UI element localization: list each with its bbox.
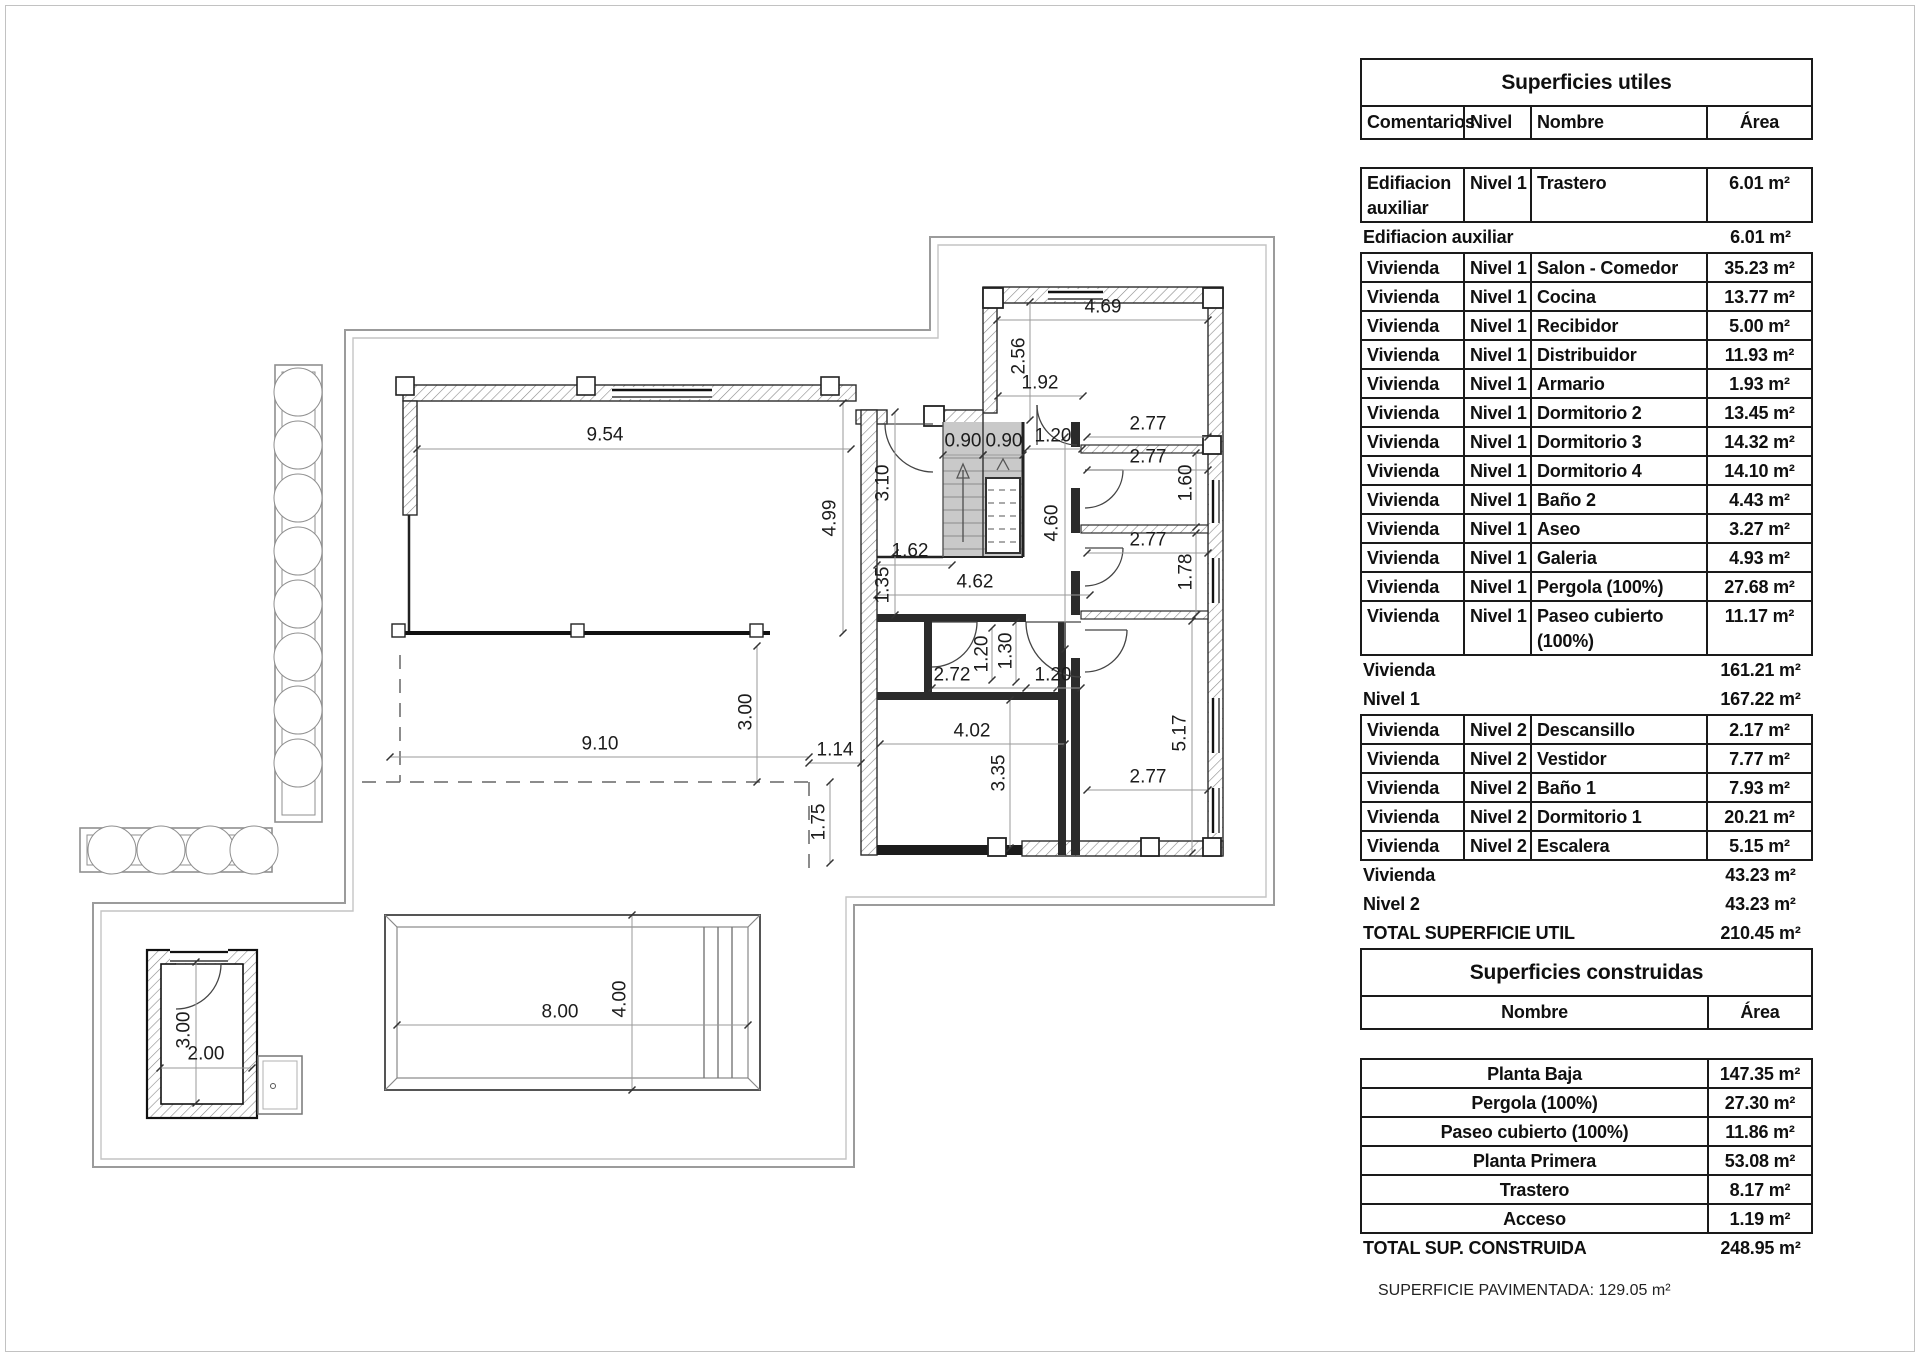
table-cell: Trastero: [1362, 1176, 1707, 1203]
table-row: Pergola (100%)27.30 m²: [1362, 1087, 1811, 1116]
table-row: ViviendaNivel 2Baño 17.93 m²: [1362, 772, 1811, 801]
table-cell: Edifiacion auxiliar: [1362, 169, 1463, 221]
table-cell: Nivel 2: [1463, 745, 1530, 772]
dimension-label: 5.17: [1171, 715, 1190, 752]
table-row: ViviendaNivel 1Recibidor5.00 m²: [1362, 310, 1811, 339]
dimension-label: 2.00: [188, 1045, 225, 1064]
table-row: Planta Primera53.08 m²: [1362, 1145, 1811, 1174]
table-cell: 1.93 m²: [1706, 370, 1811, 397]
table-cell: Vestidor: [1530, 745, 1706, 772]
table-cell: Nivel 1: [1463, 515, 1530, 542]
dimension-label: 1.35: [874, 567, 893, 604]
dimension-label: 1.20: [973, 636, 992, 673]
table-cell: 11.86 m²: [1707, 1118, 1811, 1145]
table-cell: 14.10 m²: [1706, 457, 1811, 484]
dimension-label: 1.20: [1035, 666, 1072, 685]
table-cell: Galeria: [1530, 544, 1706, 571]
dimension-label: 1.62: [892, 542, 929, 561]
table-cell: 6.01 m²: [1706, 169, 1811, 221]
subtotal-value: 210.45 m²: [1708, 919, 1813, 948]
table-cell: Vivienda: [1362, 283, 1463, 310]
table-cell: 5.15 m²: [1706, 832, 1811, 859]
table-cell: Vivienda: [1362, 716, 1463, 743]
table-cell: 4.93 m²: [1706, 544, 1811, 571]
table-cell: Nivel 1: [1463, 399, 1530, 426]
dimension-label: 2.56: [1010, 338, 1029, 375]
table-cell: Escalera: [1530, 832, 1706, 859]
table-cell: Nivel 1: [1463, 573, 1530, 600]
table-cell: Trastero: [1530, 169, 1706, 221]
dimension-label: 4.62: [957, 573, 994, 592]
dimension-label: 4.99: [821, 500, 840, 537]
dimension-label: 2.72: [934, 666, 971, 685]
storage-building: [147, 948, 257, 1118]
table-cell: Dormitorio 4: [1530, 457, 1706, 484]
table-cell: Vivienda: [1362, 602, 1463, 654]
table-cell: Vivienda: [1362, 803, 1463, 830]
table-row: ViviendaNivel 1Salon - Comedor35.23 m²: [1362, 254, 1811, 281]
table-cell: Dormitorio 3: [1530, 428, 1706, 455]
table-cell: 4.43 m²: [1706, 486, 1811, 513]
table-cell: Paseo cubierto (100%): [1530, 602, 1706, 654]
column-header: Nombre: [1362, 997, 1707, 1028]
table-cell: Vivienda: [1362, 774, 1463, 801]
table-cell: Baño 2: [1530, 486, 1706, 513]
table-cell: Nivel 2: [1463, 716, 1530, 743]
column-header: Comentarios: [1362, 107, 1463, 138]
table-cell: 5.00 m²: [1706, 312, 1811, 339]
table-row: ViviendaNivel 1Baño 24.43 m²: [1362, 484, 1811, 513]
table-cell: Baño 1: [1530, 774, 1706, 801]
subtotal-row: Nivel 1167.22 m²: [1360, 685, 1813, 714]
dimension-label: 1.92: [1022, 374, 1059, 393]
table-cell: Nivel 1: [1463, 602, 1530, 654]
subtotal-value: 43.23 m²: [1708, 861, 1813, 890]
access-pad: [258, 1056, 302, 1114]
table-row: ViviendaNivel 1Dormitorio 314.32 m²: [1362, 426, 1811, 455]
paved-surface-note: SUPERFICIE PAVIMENTADA: 129.05 m²: [1378, 1282, 1671, 1300]
table-cell: 53.08 m²: [1707, 1147, 1811, 1174]
subtotal-value: 161.21 m²: [1708, 656, 1813, 685]
table-row: ViviendaNivel 1Aseo3.27 m²: [1362, 513, 1811, 542]
table-cell: 13.45 m²: [1706, 399, 1811, 426]
table-cell: Armario: [1530, 370, 1706, 397]
tree-planter-vertical: [274, 365, 322, 822]
table-row: ViviendaNivel 1Armario1.93 m²: [1362, 368, 1811, 397]
subtotal-row: Vivienda43.23 m²: [1360, 861, 1813, 890]
table-header-row: NombreÁrea: [1362, 997, 1811, 1028]
dimension-label: 0.90: [986, 432, 1023, 451]
table-row: ViviendaNivel 1Dormitorio 414.10 m²: [1362, 455, 1811, 484]
table-title: Superficies construidas: [1362, 950, 1811, 997]
table-cell: 2.17 m²: [1706, 716, 1811, 743]
dimension-label: 1.75: [810, 804, 829, 841]
dimension-label: 1.60: [1177, 465, 1196, 502]
table-cell: Nivel 1: [1463, 370, 1530, 397]
table-cell: 35.23 m²: [1706, 254, 1811, 281]
column-header: Área: [1707, 997, 1811, 1028]
dimension-label: 9.54: [587, 426, 624, 445]
table-cell: Vivienda: [1362, 486, 1463, 513]
tree-planter-horizontal: [80, 826, 278, 874]
subtotal-row: TOTAL SUPERFICIE UTIL210.45 m²: [1360, 919, 1813, 948]
table-title: Superficies utiles: [1362, 60, 1811, 107]
dimension-label: 8.00: [542, 1003, 579, 1022]
table-cell: 20.21 m²: [1706, 803, 1811, 830]
dimension-label: 2.77: [1130, 448, 1167, 467]
pergola: [392, 377, 856, 637]
table-cell: Vivienda: [1362, 399, 1463, 426]
table-cell: Salon - Comedor: [1530, 254, 1706, 281]
dimension-label: 1.30: [997, 633, 1016, 670]
dimension-label: 2.77: [1130, 768, 1167, 787]
table-cell: 11.93 m²: [1706, 341, 1811, 368]
table-row: ViviendaNivel 1Distribuidor11.93 m²: [1362, 339, 1811, 368]
table-row: ViviendaNivel 2Vestidor7.77 m²: [1362, 743, 1811, 772]
dimension-label: 1.20: [1035, 427, 1072, 446]
table-row: ViviendaNivel 2Dormitorio 120.21 m²: [1362, 801, 1811, 830]
subtotal-row: Edifiacion auxiliar6.01 m²: [1360, 223, 1813, 252]
table-cell: Acceso: [1362, 1205, 1707, 1232]
surfaces-construidas-table: Superficies construidas NombreÁrea Plant…: [1360, 948, 1813, 1263]
subtotal-label: Vivienda: [1360, 660, 1435, 680]
table-row: Edifiacion auxiliarNivel 1Trastero6.01 m…: [1362, 169, 1811, 221]
table-cell: Planta Baja: [1362, 1060, 1707, 1087]
table-row: ViviendaNivel 2Escalera5.15 m²: [1362, 830, 1811, 859]
dimension-label: 1.78: [1177, 554, 1196, 591]
table-cell: Vivienda: [1362, 312, 1463, 339]
subtotal-label: Vivienda: [1360, 865, 1435, 885]
table-cell: Nivel 1: [1463, 169, 1530, 221]
dimension-label: 4.02: [954, 722, 991, 741]
dimension-label: 9.10: [582, 735, 619, 754]
column-header: Área: [1706, 107, 1811, 138]
table-cell: Descansillo: [1530, 716, 1706, 743]
table-cell: Vivienda: [1362, 341, 1463, 368]
table-cell: 7.77 m²: [1706, 745, 1811, 772]
table-cell: Nivel 1: [1463, 486, 1530, 513]
table-header-row: ComentariosNivelNombreÁrea: [1362, 107, 1811, 138]
column-header: Nivel: [1463, 107, 1530, 138]
table-cell: Vivienda: [1362, 254, 1463, 281]
table-row: Paseo cubierto (100%)11.86 m²: [1362, 1116, 1811, 1145]
subtotal-label: Nivel 2: [1360, 894, 1420, 914]
setting-out-lines: [362, 655, 809, 868]
table-cell: Vivienda: [1362, 428, 1463, 455]
table-cell: Paseo cubierto (100%): [1362, 1118, 1707, 1145]
table-cell: Vivienda: [1362, 370, 1463, 397]
table-row: ViviendaNivel 1Cocina13.77 m²: [1362, 281, 1811, 310]
table-cell: 8.17 m²: [1707, 1176, 1811, 1203]
subtotal-value: 43.23 m²: [1708, 890, 1813, 919]
table-cell: 27.30 m²: [1707, 1089, 1811, 1116]
table-row: ViviendaNivel 1Galeria4.93 m²: [1362, 542, 1811, 571]
table-cell: Dormitorio 1: [1530, 803, 1706, 830]
subtotal-label: TOTAL SUPERFICIE UTIL: [1360, 923, 1575, 943]
table-cell: Nivel 1: [1463, 341, 1530, 368]
subtotal-value: 167.22 m²: [1708, 685, 1813, 714]
dimension-label: 4.00: [611, 981, 630, 1018]
dimension-label: 2.77: [1130, 531, 1167, 550]
subtotal-label: Edifiacion auxiliar: [1360, 227, 1513, 247]
table-cell: Nivel 1: [1463, 283, 1530, 310]
dimension-label: 2.77: [1130, 415, 1167, 434]
drawing-sheet: 9.544.993.101.621.354.620.900.901.202.56…: [0, 0, 1920, 1357]
subtotal-row: Nivel 243.23 m²: [1360, 890, 1813, 919]
table-row: Planta Baja147.35 m²: [1362, 1060, 1811, 1087]
dimension-label: 3.35: [990, 755, 1009, 792]
table-cell: Aseo: [1530, 515, 1706, 542]
dimension-label: 1.14: [817, 741, 854, 760]
table-cell: Nivel 1: [1463, 428, 1530, 455]
dimension-label: 4.60: [1043, 505, 1062, 542]
table-cell: Nivel 1: [1463, 254, 1530, 281]
table-cell: Nivel 2: [1463, 774, 1530, 801]
dimension-label: 3.00: [737, 694, 756, 731]
table-cell: Vivienda: [1362, 745, 1463, 772]
table-cell: Pergola (100%): [1530, 573, 1706, 600]
table-row: Acceso1.19 m²: [1362, 1203, 1811, 1232]
table-cell: 13.77 m²: [1706, 283, 1811, 310]
subtotal-value: 6.01 m²: [1708, 223, 1813, 252]
subtotal-row: TOTAL SUP. CONSTRUIDA248.95 m²: [1360, 1234, 1813, 1263]
table-cell: Vivienda: [1362, 573, 1463, 600]
table-cell: Nivel 1: [1463, 544, 1530, 571]
subtotal-row: Vivienda161.21 m²: [1360, 656, 1813, 685]
table-cell: 3.27 m²: [1706, 515, 1811, 542]
table-cell: Cocina: [1530, 283, 1706, 310]
surfaces-utiles-table: Superficies utiles ComentariosNivelNombr…: [1360, 58, 1813, 948]
table-cell: Dormitorio 2: [1530, 399, 1706, 426]
table-cell: Planta Primera: [1362, 1147, 1707, 1174]
table-cell: Recibidor: [1530, 312, 1706, 339]
table-cell: Nivel 2: [1463, 803, 1530, 830]
table-cell: 27.68 m²: [1706, 573, 1811, 600]
table-cell: Vivienda: [1362, 457, 1463, 484]
table-cell: Distribuidor: [1530, 341, 1706, 368]
subtotal-label: Nivel 1: [1360, 689, 1420, 709]
table-row: ViviendaNivel 2Descansillo2.17 m²: [1362, 716, 1811, 743]
table-cell: 1.19 m²: [1707, 1205, 1811, 1232]
table-cell: 11.17 m²: [1706, 602, 1811, 654]
table-cell: Nivel 1: [1463, 457, 1530, 484]
table-cell: 147.35 m²: [1707, 1060, 1811, 1087]
table-cell: Nivel 2: [1463, 832, 1530, 859]
table-cell: 7.93 m²: [1706, 774, 1811, 801]
dimension-label: 4.69: [1085, 298, 1122, 317]
table-cell: Vivienda: [1362, 515, 1463, 542]
table-cell: Nivel 1: [1463, 312, 1530, 339]
table-cell: Vivienda: [1362, 544, 1463, 571]
table-cell: Pergola (100%): [1362, 1089, 1707, 1116]
tree-icon: [88, 826, 278, 874]
column-header: Nombre: [1530, 107, 1706, 138]
table-row: Trastero8.17 m²: [1362, 1174, 1811, 1203]
table-row: ViviendaNivel 1Pergola (100%)27.68 m²: [1362, 571, 1811, 600]
dimension-label: 0.90: [945, 432, 982, 451]
table-row: ViviendaNivel 1Dormitorio 213.45 m²: [1362, 397, 1811, 426]
table-cell: Vivienda: [1362, 832, 1463, 859]
subtotal-value: 248.95 m²: [1708, 1234, 1813, 1263]
table-cell: 14.32 m²: [1706, 428, 1811, 455]
subtotal-label: TOTAL SUP. CONSTRUIDA: [1360, 1238, 1587, 1258]
dimension-label: 3.10: [874, 465, 893, 502]
table-row: ViviendaNivel 1Paseo cubierto (100%)11.1…: [1362, 600, 1811, 654]
